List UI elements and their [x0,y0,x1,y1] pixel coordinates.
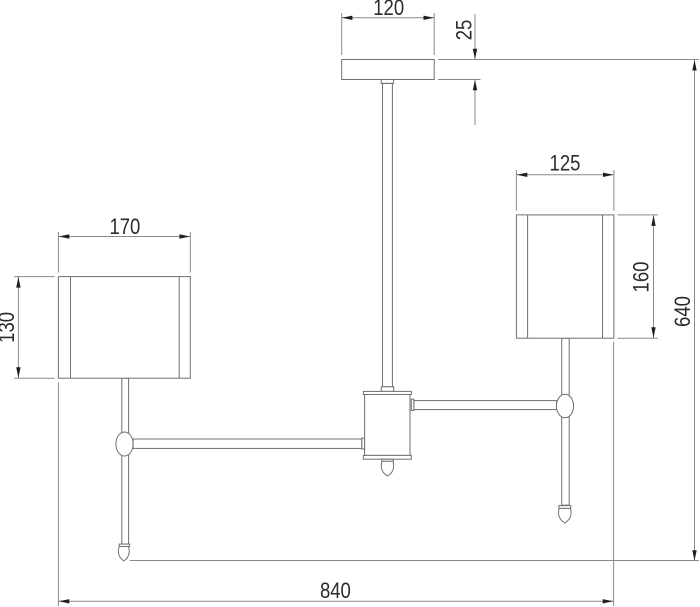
svg-text:170: 170 [109,214,140,239]
svg-text:840: 840 [320,578,351,603]
svg-text:130: 130 [0,312,19,343]
svg-text:25: 25 [452,20,477,41]
svg-text:125: 125 [550,151,581,176]
svg-text:160: 160 [629,262,654,293]
svg-text:120: 120 [373,0,404,20]
svg-text:640: 640 [670,296,695,327]
